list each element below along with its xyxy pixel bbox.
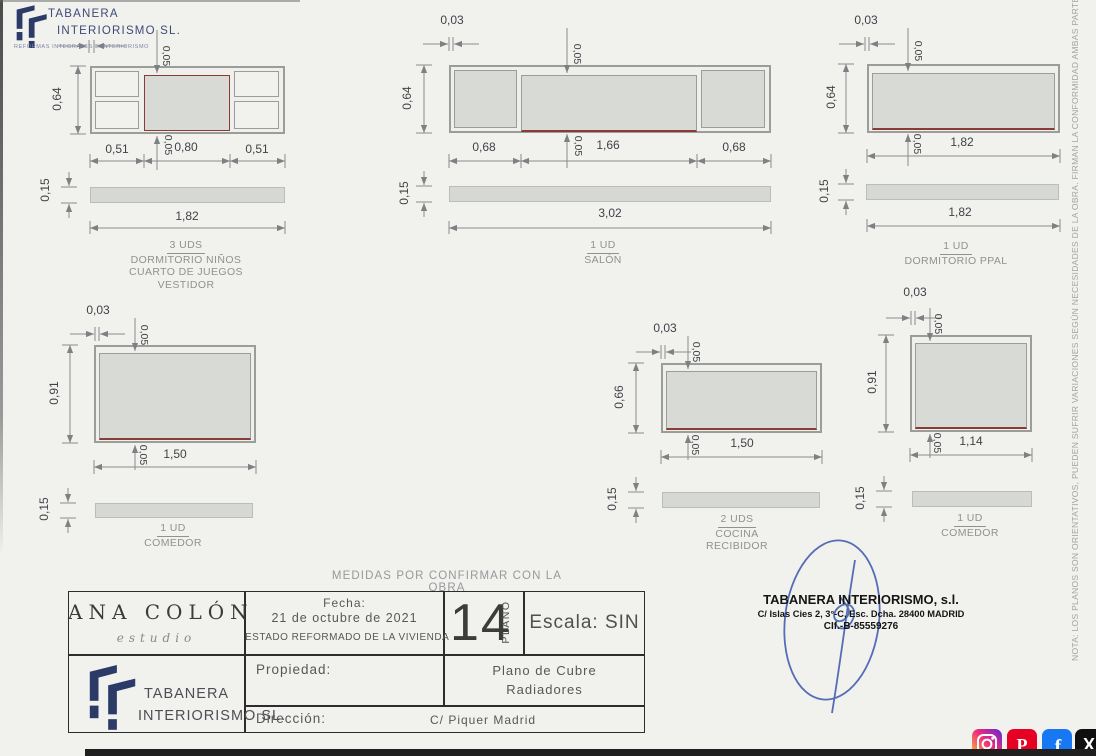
caption-d1: 3 UDS DORMITORIO NIÑOS CUARTO DE JUEGOS …	[101, 239, 271, 291]
fecha-label: Fecha:	[245, 596, 444, 610]
dim-label-d3-shelf-width: 1,82	[938, 205, 982, 219]
dim-label-d5-bottom-offset: 0,05	[689, 423, 701, 467]
dim-label-d5-top-offset: 0,05	[690, 330, 702, 374]
dim-label-d4-shelf-thickness: 0,15	[37, 487, 51, 531]
dim-label-d2-gap: 0,03	[430, 13, 474, 27]
caption-d1-room3: VESTIDOR	[158, 279, 215, 291]
scan-edge-bottom	[85, 749, 1096, 756]
caption-d1-units: 3 UDS	[167, 239, 206, 254]
tabanera-logo-icon	[12, 2, 52, 48]
dim-label-d1-top-offset: 0,05	[160, 34, 172, 78]
dim-label-d6-shelf-thickness: 0,15	[853, 476, 867, 520]
caption-d2-units: 1 UD	[587, 239, 619, 254]
dim-label-d6-height: 0,91	[865, 360, 879, 404]
dim-label-d6-gap: 0,03	[893, 285, 937, 299]
dim-label-d2-width-left: 0,68	[462, 140, 506, 154]
logo-name-line2: INTERIORISMO SL.	[57, 25, 181, 37]
propiedad-label: Propiedad:	[256, 662, 331, 677]
dim-label-d5-gap: 0,03	[643, 321, 687, 335]
escala-value: SIN	[605, 612, 640, 633]
studio-name: ANA COLÓN	[68, 600, 245, 624]
dim-label-d4-width: 1,50	[153, 447, 197, 461]
caption-d4-units: 1 UD	[157, 522, 189, 537]
escala-label: Escala:	[529, 612, 598, 633]
dim-label-d1-shelf-width: 1,82	[165, 209, 209, 223]
logo-tagline: REFORMAS INTEGRALES E INTERIORISMO	[14, 44, 149, 50]
logo-name-line1: TABANERA	[48, 8, 119, 20]
caption-d6-room1: COMEDOR	[941, 527, 999, 539]
direccion-label: Dirección:	[256, 711, 326, 726]
dim-label-d5-width: 1,50	[720, 436, 764, 450]
side-disclaimer-note: NOTA: LOS PLANOS SON ORIENTATIVOS, PUEDE…	[1070, 61, 1080, 661]
dim-label-d4-top-offset: 0,05	[138, 313, 150, 357]
dim-label-d1-shelf-thickness: 0,15	[38, 168, 52, 212]
stamp-address: C/ Islas Cies 2, 3°-C, Esc. Dcha. 28400 …	[726, 609, 996, 619]
dim-label-d5-shelf-thickness: 0,15	[605, 477, 619, 521]
dim-label-d2-bottom-offset: 0,05	[572, 124, 584, 168]
dim-label-d3-gap: 0,03	[844, 13, 888, 27]
firm-name-line1: TABANERA	[144, 686, 229, 702]
dim-label-d1-height: 0,64	[50, 77, 64, 121]
signature	[740, 535, 940, 735]
dim-label-d4-gap: 0,03	[76, 303, 120, 317]
estado-note: ESTADO REFORMADO DE LA VIVIENDA	[245, 632, 444, 643]
dim-label-d6-bottom-offset: 0,05	[931, 421, 943, 465]
dim-label-d6-top-offset: 0,05	[932, 302, 944, 346]
fecha-value: 21 de octubre de 2021	[245, 611, 444, 625]
stamp-cif: CIf.-B-85559276	[726, 621, 996, 632]
caption-d2-room1: SALÓN	[584, 254, 622, 266]
dim-label-d2-top-offset: 0,05	[571, 32, 583, 76]
dim-label-d3-top-offset: 0,05	[912, 29, 924, 73]
dim-label-d2-width-center: 1,66	[586, 138, 630, 152]
dim-label-d3-width: 1,82	[940, 135, 984, 149]
dim-label-d1-width-left: 0,51	[95, 142, 139, 156]
dim-label-d3-height: 0,64	[824, 75, 838, 119]
dim-label-d2-shelf-thickness: 0,15	[397, 171, 411, 215]
caption-d3-units: 1 UD	[940, 240, 972, 255]
caption-d3-room1: DORMITORIO PPAL	[904, 255, 1007, 267]
dim-label-d2-height: 0,64	[400, 76, 414, 120]
caption-d5-units: 2 UDS	[718, 513, 757, 528]
direccion-value: C/ Piquer Madrid	[430, 713, 536, 727]
dim-label-d4-height: 0,91	[47, 371, 61, 415]
dim-label-d4-bottom-offset: 0,05	[137, 433, 149, 477]
dim-label-d6-width: 1,14	[949, 434, 993, 448]
plano-number-label: PLANO	[500, 600, 512, 644]
radiator-covers-plan-sheet: 0,51 0,80 0,51 1,82 0,64 0,15 0,05 0,05 …	[0, 0, 1096, 756]
caption-d1-room1: DORMITORIO NIÑOS	[131, 254, 242, 266]
dim-label-d2-shelf-width: 3,02	[588, 206, 632, 220]
stamp-company-name: TABANERA INTERIORISMO, s.l.	[726, 592, 996, 607]
escala: Escala: SIN	[524, 612, 645, 634]
caption-d4-room1: COMEDOR	[144, 537, 202, 549]
dim-label-d3-shelf-thickness: 0,15	[817, 169, 831, 213]
caption-d2: 1 UD SALÓN	[518, 239, 688, 266]
scan-edge-left	[0, 0, 3, 556]
dim-label-d3-bottom-offset: 0,05	[911, 122, 923, 166]
studio-subtitle: estudio	[68, 631, 245, 645]
dim-label-d1-bottom-offset: 0,05	[162, 123, 174, 167]
caption-d3: 1 UD DORMITORIO PPAL	[871, 240, 1041, 267]
caption-d6-units: 1 UD	[954, 512, 986, 527]
caption-d4: 1 UD COMEDOR	[88, 522, 258, 549]
caption-d1-room2: CUARTO DE JUEGOS	[129, 266, 243, 278]
scan-edge-top	[0, 0, 300, 2]
dim-label-d1-width-right: 0,51	[235, 142, 279, 156]
plano-title-line1: Plano de Cubre	[444, 663, 645, 678]
dim-label-d2-width-right: 0,68	[712, 140, 756, 154]
tabanera-logo-icon-large	[84, 660, 142, 730]
plano-title-line2: Radiadores	[444, 682, 645, 697]
dim-label-d5-height: 0,66	[612, 375, 626, 419]
